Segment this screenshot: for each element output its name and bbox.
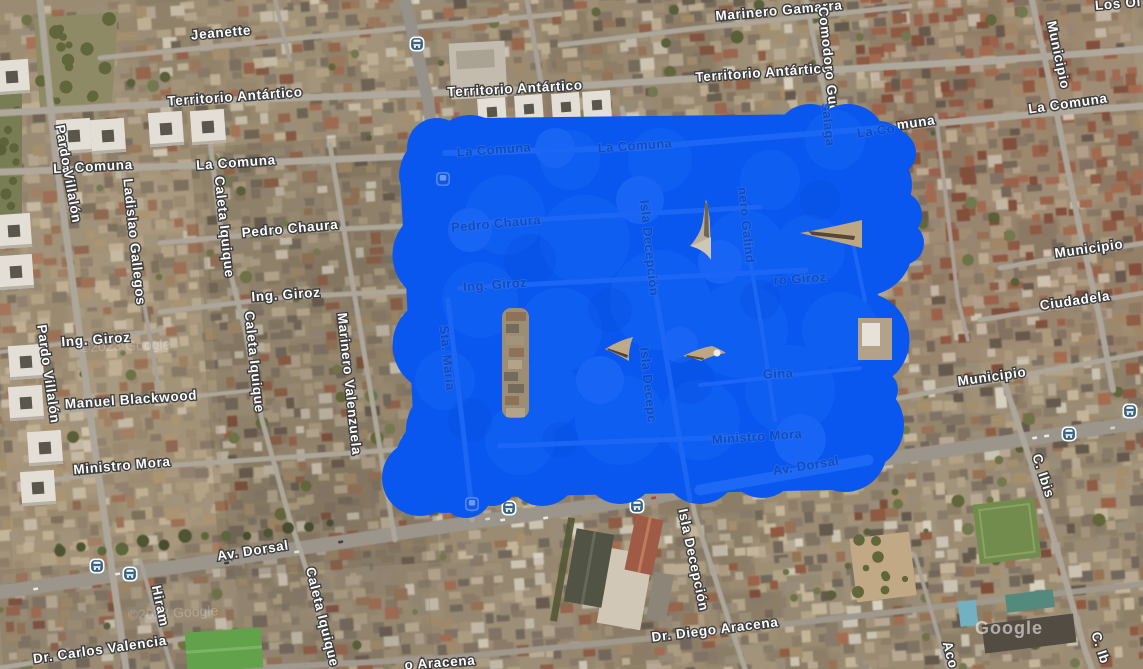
svg-text:Gina: Gina bbox=[762, 365, 794, 382]
svg-text:©2023 Google: ©2023 Google bbox=[80, 336, 171, 355]
svg-text:Google: Google bbox=[975, 618, 1043, 638]
